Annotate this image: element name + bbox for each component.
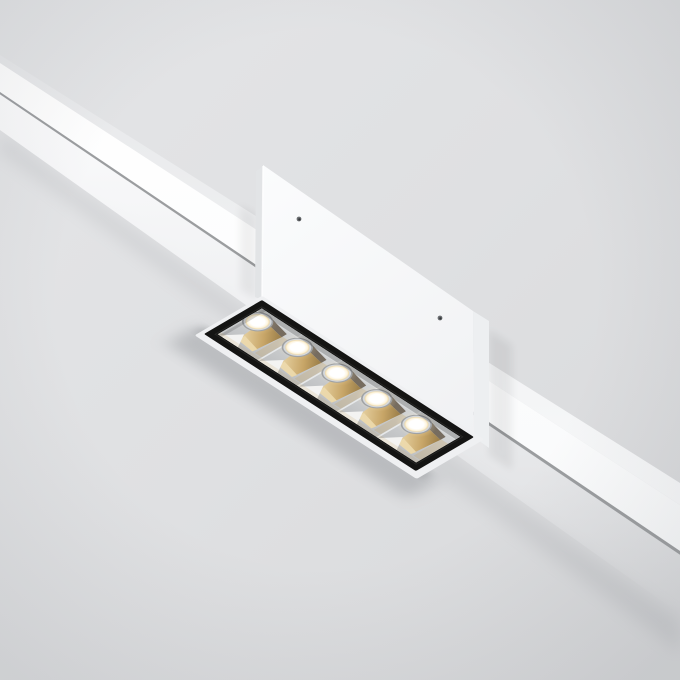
scene-track-light-photo xyxy=(0,0,680,680)
product-photo-stage xyxy=(0,0,680,680)
vignette-overlay xyxy=(0,0,680,680)
